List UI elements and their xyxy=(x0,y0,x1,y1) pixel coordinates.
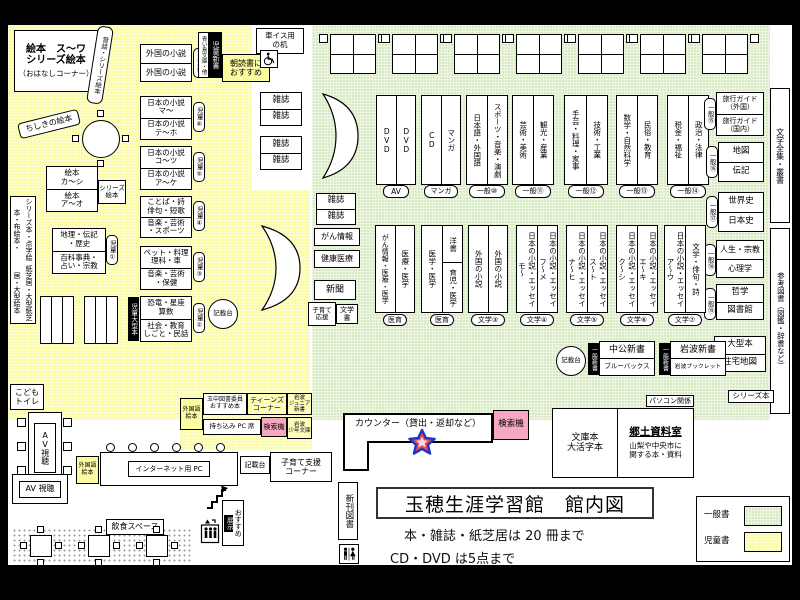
map-title: 玉穂生涯学習館 館内図 xyxy=(376,487,654,519)
stool xyxy=(150,443,159,452)
chair xyxy=(136,542,143,549)
chair xyxy=(153,559,160,566)
stool xyxy=(194,443,203,452)
reading-table xyxy=(392,34,438,74)
reading-table-group xyxy=(381,34,449,78)
shelf-kids-japanese-novels-ma: 日本の小説マ～ 日本の小説テ～ホ xyxy=(140,96,192,140)
badge-jido-2: 児童② xyxy=(193,303,205,333)
wheelchair-icon xyxy=(260,50,278,68)
shelf-kids-language-arts: ことば・詩俳句・短歌 音楽・芸術・スポーツ xyxy=(140,196,192,238)
legend-general-row: 一般書 xyxy=(704,503,782,529)
badge-ippan-15: 一般⑮ xyxy=(704,98,716,130)
tag-ippan-shinsho-2: 一般新書 xyxy=(659,343,670,375)
star-marker xyxy=(407,428,437,458)
stool xyxy=(172,443,181,452)
badge-jido-1: 児童① xyxy=(106,235,118,265)
tag-tamachu-recommended: 玉中図書委員おすすめ本 xyxy=(203,393,247,415)
chair xyxy=(122,135,129,142)
chair xyxy=(505,34,514,43)
tag-iiku-1: 医育 xyxy=(383,314,407,326)
legend-children-row: 児童書 xyxy=(704,529,782,555)
tag-ippan-12: 一般⑫ xyxy=(568,185,604,198)
badge-jido-6: 児童⑥ xyxy=(193,102,205,132)
eating-table xyxy=(146,535,168,557)
tag-ippan-shinsho-1: 一般新書 xyxy=(588,343,599,375)
shelf-japanese-novels-ku: 日本の小説・エッセイク～シ 日本の小説・エッセイエ～キ xyxy=(616,225,658,313)
reading-table xyxy=(516,34,562,74)
counter-return xyxy=(343,441,369,471)
tag-series-picture-books: シリーズ絵本 xyxy=(98,180,126,204)
internet-pc-counter: インターネット用 PC xyxy=(100,452,238,486)
chair xyxy=(20,542,27,549)
chair xyxy=(691,34,700,43)
book-rack xyxy=(106,296,118,344)
library-floor-map: 絵本 ス～ワ シリーズ絵本 （おはなしコーナー） 昔話・シリーズ絵本 ちしきの絵… xyxy=(0,0,800,600)
eating-table-group xyxy=(136,526,178,568)
legend-general-swatch xyxy=(744,506,782,526)
shelf-tax-politics: 税金・福祉政治・法律 xyxy=(667,95,709,185)
shelf-series-braille-cloth-books: シリーズ本・点字絵本・布絵本・紙芝居・大型紙芝居・大型絵本 xyxy=(10,196,36,324)
chair xyxy=(78,542,85,549)
chair xyxy=(55,542,62,549)
kids-toilet: こどもトイレ xyxy=(10,384,44,410)
eating-table-group xyxy=(78,526,120,568)
tag-av: AV xyxy=(383,185,409,198)
shelf-japanese-novels-a-poetry: 日本の小説・エッセイア～ウ 文学・俳句・詩 xyxy=(664,225,706,313)
badge-ippan-16: 一般⑯ xyxy=(706,146,718,178)
shelf-japanese-novels-mo: 日本の小説・エッセイモ～ 日本の小説・エッセイフ～メ xyxy=(516,225,558,313)
eating-table xyxy=(88,535,110,557)
shelf-reference-books: 参考図書（図鑑・辞書など） xyxy=(770,228,790,414)
badge-ippan-17: 一般⑰ xyxy=(706,196,718,228)
stool xyxy=(106,443,115,452)
shelf-cancer-medical: がん情報・医療・医学 医療・医学 xyxy=(375,225,415,313)
tag-bungaku-6: 文学⑥ xyxy=(620,314,654,326)
badge-jido-5: 児童⑤ xyxy=(193,152,205,182)
chair xyxy=(97,110,104,117)
tag-foreign-language-picture-books-1: 外国語絵本 xyxy=(180,398,203,430)
writing-stand-3: 記載台 xyxy=(240,456,270,474)
reading-table-group xyxy=(319,34,387,78)
shelf-magazines-2: 雑誌 雑誌 xyxy=(260,136,302,170)
tag-ippan-11: 一般⑪ xyxy=(515,185,551,198)
shelf-literature-collections: 文学全集・叢書 xyxy=(770,88,790,223)
av-viewing-booth: AV 視聴 xyxy=(12,474,68,504)
badge-jido-3: 児童③ xyxy=(193,252,205,282)
restroom-icon xyxy=(339,544,359,564)
local-history-room: 文庫本大活字本 郷土資料室 山梨や中央市に 関する本・資料 xyxy=(552,408,694,478)
chair xyxy=(37,526,44,533)
lending-rule-av: CD・DVD は5点まで xyxy=(390,548,515,567)
chair xyxy=(567,34,576,43)
shelf-newspapers: 新聞 xyxy=(314,280,356,300)
chair xyxy=(17,418,26,427)
tag-bungaku-7: 文学⑦ xyxy=(668,314,702,326)
legend: 一般書 児童書 xyxy=(696,496,790,562)
eating-table xyxy=(30,535,52,557)
chair xyxy=(750,34,759,43)
chair xyxy=(629,34,638,43)
tag-iiku-2: 医育 xyxy=(430,314,454,326)
shelf-dvd: DVDDVD xyxy=(376,95,416,185)
shelf-magazines-3: 雑誌 雑誌 xyxy=(316,193,356,225)
chair xyxy=(113,542,120,549)
chair xyxy=(17,442,26,451)
shelf-iwanami-junior-shinsho: 岩波ジュニア新書 xyxy=(287,393,312,415)
tag-ippan-14: 一般⑭ xyxy=(670,185,706,198)
chair xyxy=(63,442,72,451)
crescent-desk-lower xyxy=(254,224,302,312)
tag-foreign-language-picture-books-2: 外国語絵本 xyxy=(76,456,99,484)
reading-table xyxy=(702,34,748,74)
chair xyxy=(319,34,328,43)
reading-table-group xyxy=(567,34,635,78)
shelf-picture-books-ka: 絵本カ～シ 絵本ア～オ xyxy=(46,166,98,212)
reading-table-group xyxy=(443,34,511,78)
stool xyxy=(128,443,137,452)
shelf-handicrafts-technology: 手芸・料理・家事技術・工業 xyxy=(564,95,608,185)
tag-parenting-support-books: 子育て応援 xyxy=(308,302,336,326)
chair xyxy=(72,135,79,142)
shelf-kids-foreign-novels: 外国の小説 外国の小説 xyxy=(140,44,192,82)
tag-kids-shinsho: 児童新書 xyxy=(209,32,222,78)
tag-bungaku-3: 文学③ xyxy=(471,314,505,326)
shelf-philosophy-library: 哲学 図書館 xyxy=(716,284,764,320)
tag-pc-related: パソコン関係 xyxy=(646,395,694,407)
shelf-cancer-info: がん情報 xyxy=(314,228,360,246)
shelf-kids-pets-science: ペット・料理理科・車 音楽・芸術・保健 xyxy=(140,246,192,290)
tag-ippan-13: 一般⑬ xyxy=(619,185,655,198)
reading-table xyxy=(640,34,686,74)
shelf-world-japanese-history: 世界史 日本史 xyxy=(718,192,764,232)
chair xyxy=(153,526,160,533)
chair xyxy=(95,559,102,566)
tag-ippan-10: 一般⑩ xyxy=(469,185,505,198)
tag-bluebird-bunko: 青い鳥文庫・他 xyxy=(198,32,209,78)
stool xyxy=(216,443,225,452)
shelf-foreign-novels: 外国の小説外国の小説 xyxy=(468,225,508,313)
shelf-travel-guides: 旅行ガイド（外国） 旅行ガイド（国内） xyxy=(716,92,764,136)
reading-table xyxy=(454,34,500,74)
shelf-cd-manga: CDマンガ xyxy=(421,95,461,185)
shelf-chuko-shinsho: 中公新書 ブルーバックス xyxy=(599,341,655,376)
search-machine-main: 検索機 xyxy=(493,410,529,440)
chair xyxy=(443,34,452,43)
reading-table-group xyxy=(691,34,759,78)
round-table xyxy=(82,120,120,158)
lending-rule-books: 本・雑誌・紙芝居は 20 冊まで xyxy=(404,525,585,544)
shelf-life-religion-psychology: 人生・宗教 心理学 xyxy=(716,240,764,278)
shelf-iwanami-shinsho: 岩波新書 岩波ブックレット xyxy=(670,341,726,376)
shelf-maps-biography: 地図 伝記 xyxy=(718,142,764,182)
shelf-magazines-1: 雑誌 雑誌 xyxy=(260,92,302,126)
chair xyxy=(171,542,178,549)
reading-table-group xyxy=(629,34,697,78)
shelf-math-folklore: 数学・自然科学民俗・教育 xyxy=(616,95,658,185)
shelf-kids-geography-encyclopedia: 地理・伝記・歴史 百科事典・占い・宗教 xyxy=(52,228,106,274)
shelf-picture-books-corner: 絵本 ス～ワ シリーズ絵本 （おはなしコーナー） xyxy=(14,30,98,92)
shelf-health-medical: 健康医療 xyxy=(314,250,360,268)
shelf-kids-japanese-novels-ko: 日本の小説コ～ツ 日本の小説ア～ケ xyxy=(140,146,192,190)
tag-kids-large-books: 児童大型本 xyxy=(128,297,139,341)
recommended-display: 展示 おすすめ xyxy=(222,500,244,546)
tag-series-books: シリーズ本 xyxy=(728,390,774,403)
shelf-japanese-novels-na: 日本の小説・エッセイナ～ヒ 日本の小説・エッセイス～ト xyxy=(566,225,608,313)
shelf-medicine-childcare: 医学・医学 洋書 育児・医学 xyxy=(421,225,463,313)
byo-pc-seat: 持ち込み PC 席 xyxy=(203,419,261,435)
writing-stand: 記載台 xyxy=(208,299,238,329)
eating-table-group xyxy=(20,526,62,568)
shelf-iwanami-shonen-bunko: 岩波少年文庫 xyxy=(287,417,312,439)
legend-children-swatch xyxy=(744,532,782,552)
reading-table xyxy=(578,34,624,74)
teens-corner: ティーンズコーナー xyxy=(247,393,287,415)
book-rack xyxy=(62,296,74,344)
tag-bungaku-4: 文学④ xyxy=(520,314,554,326)
chair xyxy=(37,559,44,566)
shelf-languages-performing-arts: 日本語・外国語スポーツ・音楽・演劇 xyxy=(466,95,508,185)
tag-bungaku-5: 文学⑤ xyxy=(570,314,604,326)
shelf-art-tourism: 芸術・美術観光・産業 xyxy=(512,95,554,185)
tag-manga: マンガ xyxy=(424,185,458,198)
parenting-support-corner: 子育て支援コーナー xyxy=(270,452,332,482)
elevator-icon xyxy=(200,518,220,544)
search-machine-teens: 検索機 xyxy=(261,417,287,437)
badge-jido-4: 児童④ xyxy=(193,201,205,231)
tag-literature-books: 文学書 xyxy=(336,304,358,324)
shelf-kids-dinosaurs-society: 恐竜・星座算数 社会・教育しごと・民話 xyxy=(140,296,192,342)
writing-stand-2: 記載台 xyxy=(556,346,586,376)
reading-table xyxy=(330,34,376,74)
crescent-desk-upper xyxy=(316,92,360,180)
chair xyxy=(381,34,390,43)
chair xyxy=(63,418,72,427)
chair xyxy=(97,160,104,167)
chair xyxy=(95,526,102,533)
shelf-new-arrivals: 新刊図書 xyxy=(338,482,358,540)
reading-table-group xyxy=(505,34,573,78)
